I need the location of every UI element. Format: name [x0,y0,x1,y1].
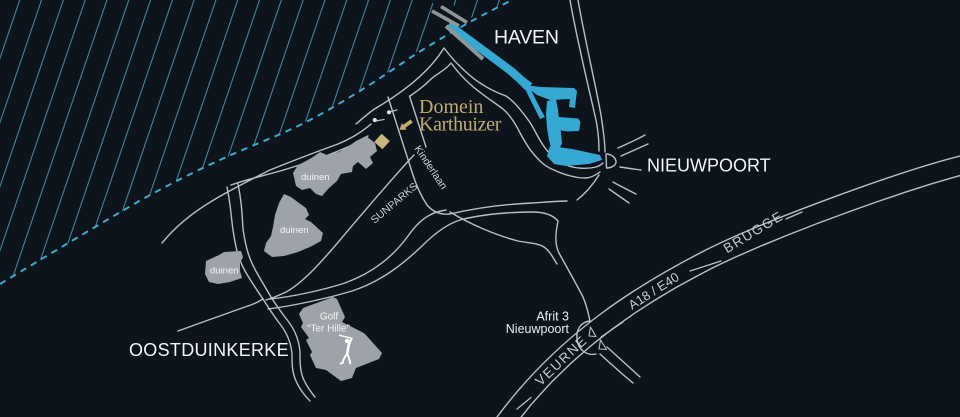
svg-text:Golf: Golf [320,312,339,323]
svg-text:Karthuizer: Karthuizer [419,114,502,136]
svg-text:duinen: duinen [280,225,309,236]
svg-text:HAVEN: HAVEN [494,27,559,49]
svg-text:Nieuwpoort: Nieuwpoort [506,322,570,336]
svg-text:duinen: duinen [210,266,239,277]
svg-text:NIEUWPOORT: NIEUWPOORT [647,156,771,176]
svg-text:duinen: duinen [301,172,330,183]
svg-text:“Ter Hille”: “Ter Hille” [307,324,350,335]
svg-text:OOSTDUINKERKE: OOSTDUINKERKE [129,340,289,360]
